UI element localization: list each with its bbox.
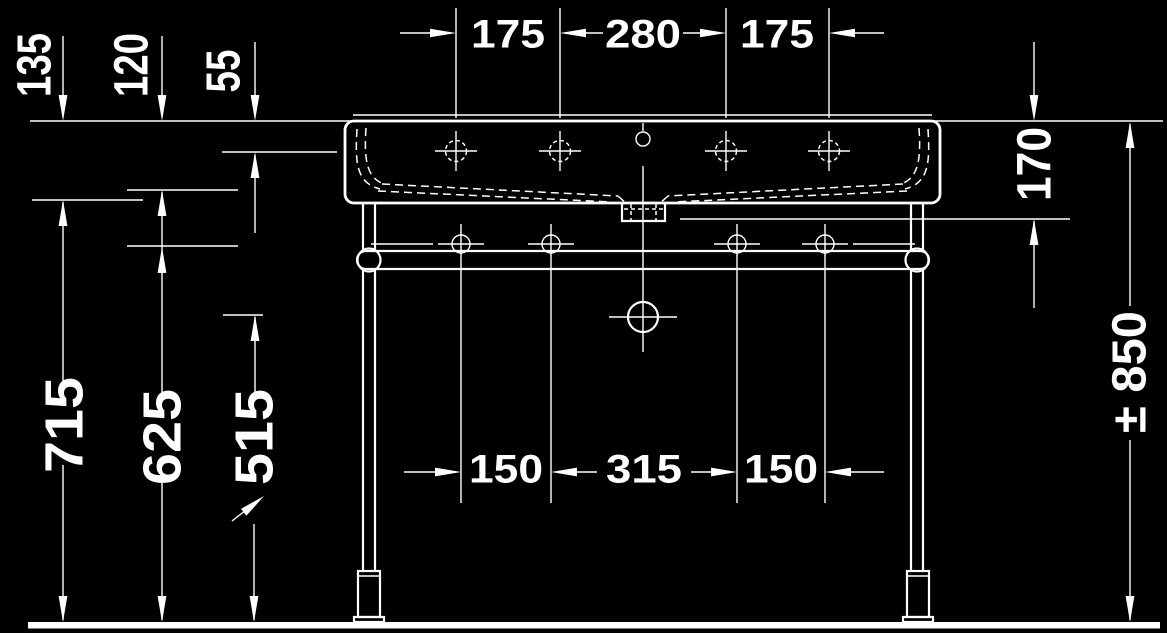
dim-top-center: 280 xyxy=(605,12,681,56)
diagonal-arrowhead xyxy=(241,496,264,516)
faucet-hole-2 xyxy=(539,131,581,171)
dim-bottom-right: 150 xyxy=(744,447,818,491)
arrowhead xyxy=(829,29,855,37)
dim-left-upper: 135 120 55 xyxy=(8,33,259,273)
bowl-wall-left-inner xyxy=(365,128,384,184)
arrowhead xyxy=(158,95,167,121)
arrowhead xyxy=(1030,95,1039,121)
floor-line xyxy=(28,622,1160,629)
bowl-slope-left-lower xyxy=(378,191,612,202)
dim-left-lower: 715 625 515 xyxy=(34,192,284,622)
dim-height-715: 715 xyxy=(34,377,94,473)
dim-depth-170: 170 xyxy=(1008,127,1061,201)
arrowhead xyxy=(59,596,68,622)
reference-lines xyxy=(30,115,1163,315)
foot-sleeve-right xyxy=(907,571,929,617)
arrowhead xyxy=(551,468,577,477)
arrowhead xyxy=(430,29,456,37)
drawing-canvas: 175 280 175 135 120 55 715 625 515 xyxy=(0,0,1167,633)
arrowhead xyxy=(251,95,260,121)
faucet-hole-3 xyxy=(705,131,747,171)
bowl-wall-right-inner xyxy=(901,128,920,184)
dim-height-515: 515 xyxy=(224,389,284,485)
dim-bottom-left: 150 xyxy=(469,447,543,491)
dim-height-850: ± 850 xyxy=(1103,311,1156,433)
arrowhead xyxy=(435,468,461,477)
faucet-hole-1 xyxy=(435,131,477,171)
bowl-slope-right-lower xyxy=(674,191,907,202)
foot-plate-left xyxy=(354,617,384,622)
arrowhead xyxy=(158,596,167,622)
dim-top-left: 175 xyxy=(471,12,545,56)
bowl-slope-left-upper xyxy=(382,184,618,196)
arrowhead xyxy=(711,468,737,477)
dim-chain-top: 175 280 175 xyxy=(400,8,884,118)
dim-chain-bottom: 150 315 150 xyxy=(404,447,884,491)
foot-plate-right xyxy=(903,617,933,622)
arrowhead xyxy=(1126,596,1135,622)
dim-depth-135: 135 xyxy=(8,33,61,97)
overflow-hole xyxy=(636,132,650,146)
arrowhead xyxy=(560,29,586,37)
dimension-drawing: 175 280 175 135 120 55 715 625 515 xyxy=(0,0,1167,633)
arrowhead xyxy=(825,468,851,477)
dim-right: 170 ± 850 xyxy=(1008,42,1156,622)
dim-top-right: 175 xyxy=(740,12,814,56)
dim-depth-120: 120 xyxy=(105,33,158,97)
arrowhead xyxy=(700,29,726,37)
bowl-slope-right-upper xyxy=(668,184,903,196)
arrowhead xyxy=(250,596,259,622)
foot-sleeve-left xyxy=(358,571,380,617)
dim-height-625: 625 xyxy=(132,389,192,485)
dim-bottom-center: 315 xyxy=(606,447,682,491)
faucet-hole-4 xyxy=(808,131,850,171)
arrowhead xyxy=(59,95,68,121)
dim-depth-55: 55 xyxy=(197,50,250,93)
